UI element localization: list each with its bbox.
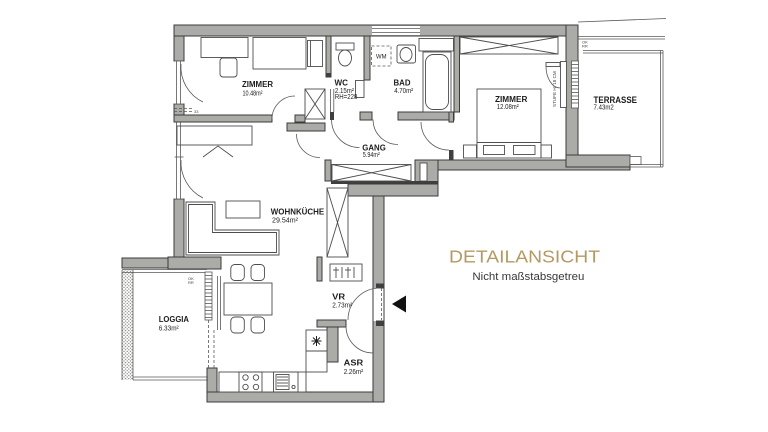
svg-text:GANG: GANG (362, 142, 386, 152)
svg-text:WC: WC (335, 77, 349, 87)
svg-text:BAD: BAD (394, 78, 411, 88)
svg-text:RR: RR (188, 280, 194, 285)
svg-text:RH=228: RH=228 (335, 94, 358, 101)
svg-text:33: 33 (194, 109, 199, 114)
svg-text:5.94m²: 5.94m² (363, 152, 381, 159)
svg-text:DETAILANSICHT: DETAILANSICHT (449, 247, 600, 267)
svg-text:ASR: ASR (344, 357, 364, 367)
svg-text:4.70m²: 4.70m² (394, 88, 414, 95)
svg-text:TERRASSE: TERRASSE (594, 95, 638, 105)
svg-text:ZIMMER: ZIMMER (242, 79, 274, 89)
svg-text:LOGGIA: LOGGIA (159, 314, 189, 324)
svg-text:12.08m²: 12.08m² (497, 104, 520, 111)
svg-text:7.43m2: 7.43m2 (594, 105, 614, 112)
svg-text:VR: VR (332, 292, 346, 302)
svg-text:Nicht maßstabsgetreu: Nicht maßstabsgetreu (472, 271, 584, 283)
svg-text:2.26m²: 2.26m² (344, 369, 364, 376)
svg-text:RR: RR (582, 44, 588, 49)
svg-text:10.48m²: 10.48m² (243, 90, 264, 97)
svg-text:2.73m²: 2.73m² (332, 303, 353, 310)
svg-text:WOHNKÜCHE: WOHNKÜCHE (271, 207, 325, 217)
svg-text:WM: WM (376, 54, 387, 61)
svg-text:ZIMMER: ZIMMER (495, 94, 528, 104)
svg-text:29.54m²: 29.54m² (272, 217, 299, 224)
svg-text:STUFE H: 18 CM: STUFE H: 18 CM (552, 71, 557, 107)
svg-text:6.33m²: 6.33m² (159, 326, 180, 333)
